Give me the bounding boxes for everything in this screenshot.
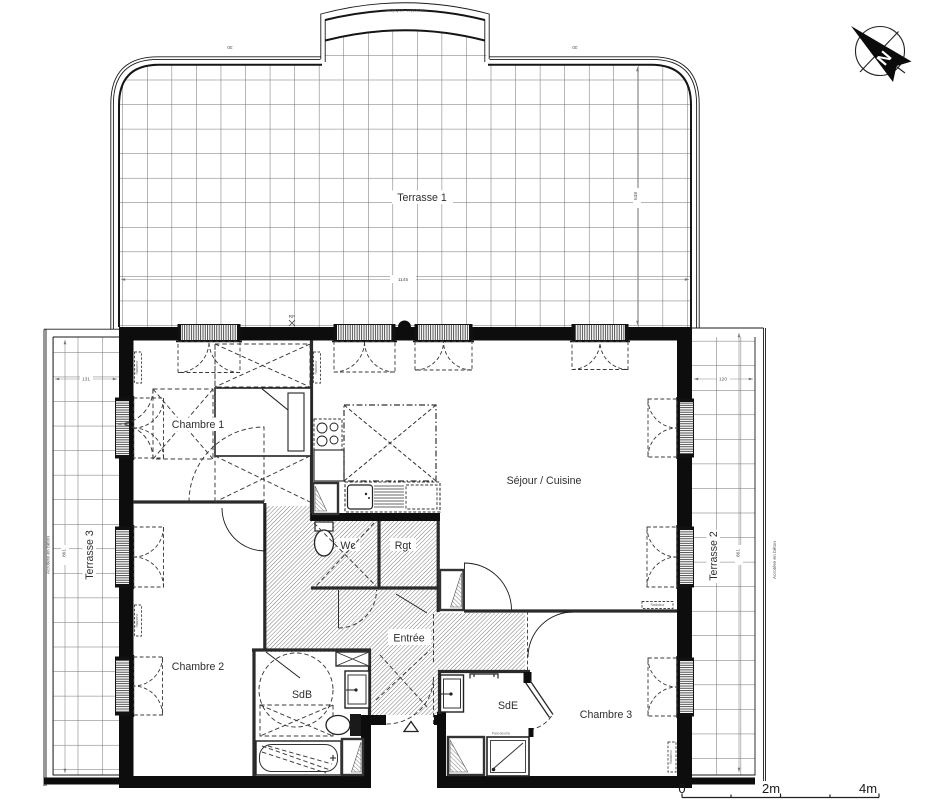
svg-text:SdB: SdB xyxy=(292,689,312,701)
svg-text:Terrasse 2: Terrasse 2 xyxy=(708,531,720,581)
svg-text:RP: RP xyxy=(289,314,296,320)
svg-text:Séjour / Cuisine: Séjour / Cuisine xyxy=(507,475,582,487)
svg-text:30: 30 xyxy=(572,44,578,50)
svg-text:Acrotère en béton: Acrotère en béton xyxy=(46,536,52,574)
svg-text:Radiateur: Radiateur xyxy=(314,360,318,375)
svg-text:Pare-douche: Pare-douche xyxy=(492,732,510,736)
svg-text:638: 638 xyxy=(633,192,639,200)
svg-text:Chambre 2: Chambre 2 xyxy=(172,661,225,673)
svg-text:Rgt: Rgt xyxy=(395,540,412,552)
svg-text:Acrotère en béton: Acrotère en béton xyxy=(386,7,424,13)
svg-text:Acrotère en béton: Acrotère en béton xyxy=(772,541,778,579)
svg-text:Terrasse 1: Terrasse 1 xyxy=(397,192,447,204)
svg-text:Radiateur: Radiateur xyxy=(135,613,139,628)
svg-text:Radiateur: Radiateur xyxy=(135,360,139,375)
svg-text:861: 861 xyxy=(736,549,742,557)
svg-text:861: 861 xyxy=(62,549,68,557)
svg-text:0: 0 xyxy=(678,781,685,796)
svg-text:Entrée: Entrée xyxy=(393,633,424,645)
svg-text:Terrasse 3: Terrasse 3 xyxy=(84,530,96,580)
svg-text:1145: 1145 xyxy=(398,277,409,283)
svg-text:2m: 2m xyxy=(762,781,780,796)
svg-text:30: 30 xyxy=(227,44,233,50)
svg-text:Chambre 3: Chambre 3 xyxy=(580,709,633,721)
svg-text:4m: 4m xyxy=(859,781,877,796)
svg-text:SdE: SdE xyxy=(498,700,518,712)
svg-text:Radiateur: Radiateur xyxy=(669,749,673,764)
svg-text:Chambre 1: Chambre 1 xyxy=(172,419,225,431)
svg-text:Radiateur: Radiateur xyxy=(651,603,666,607)
svg-text:131: 131 xyxy=(82,377,90,383)
svg-text:120: 120 xyxy=(719,377,727,383)
